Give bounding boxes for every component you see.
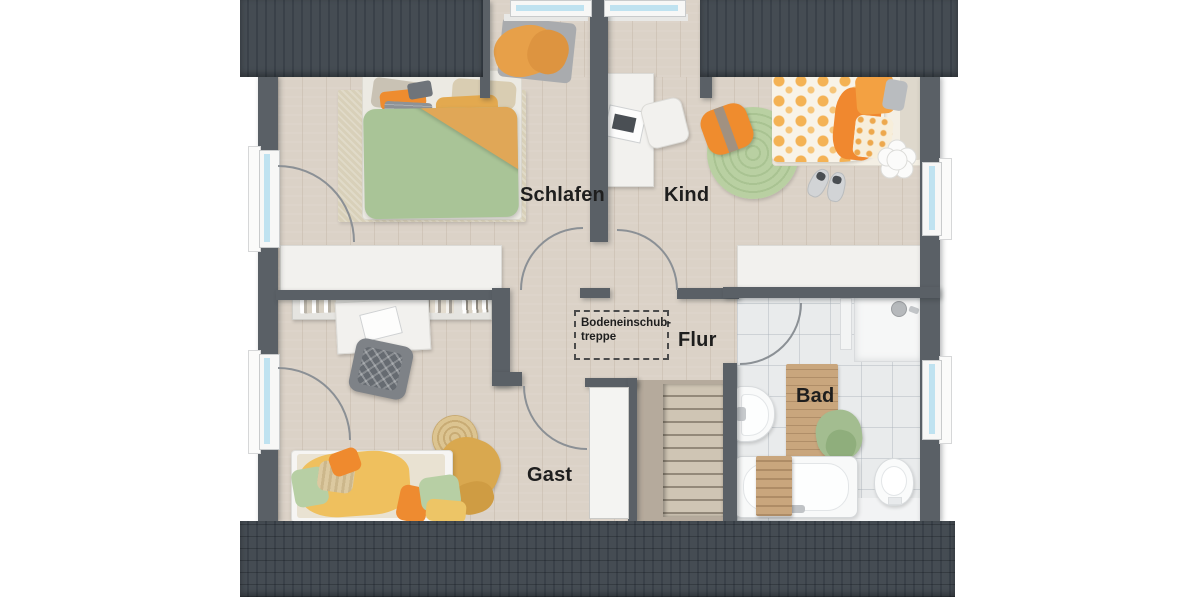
- roof-top-left: [240, 0, 483, 77]
- attic-hatch-label-line1: Bodeneinschub-: [581, 316, 665, 330]
- door-arc-schlafen: [521, 228, 583, 290]
- room-label-flur: Flur: [678, 329, 717, 352]
- flower-side-table: [878, 140, 916, 178]
- room-label-kind: Kind: [664, 184, 709, 207]
- attic-hatch-box: Bodeneinschub- treppe: [574, 310, 669, 360]
- attic-hatch-label-line2: treppe: [581, 330, 665, 344]
- roof-bottom: [240, 521, 955, 597]
- door-arc-gast: [524, 386, 587, 449]
- floor-plan-canvas: Schlafen Kind Flur Gast Bad Bodeneinschu…: [0, 0, 1200, 600]
- room-label-bad: Bad: [796, 385, 834, 408]
- door-arc-overlay: [0, 0, 1200, 600]
- roof-top-right: [700, 0, 958, 77]
- door-arc-bad: [740, 303, 801, 364]
- door-arc-schlafen-balcony: [278, 166, 354, 242]
- room-label-schlafen: Schlafen: [520, 184, 605, 207]
- room-label-gast: Gast: [527, 464, 572, 487]
- door-arc-gast-balcony: [278, 368, 350, 440]
- door-arc-kind: [617, 230, 677, 290]
